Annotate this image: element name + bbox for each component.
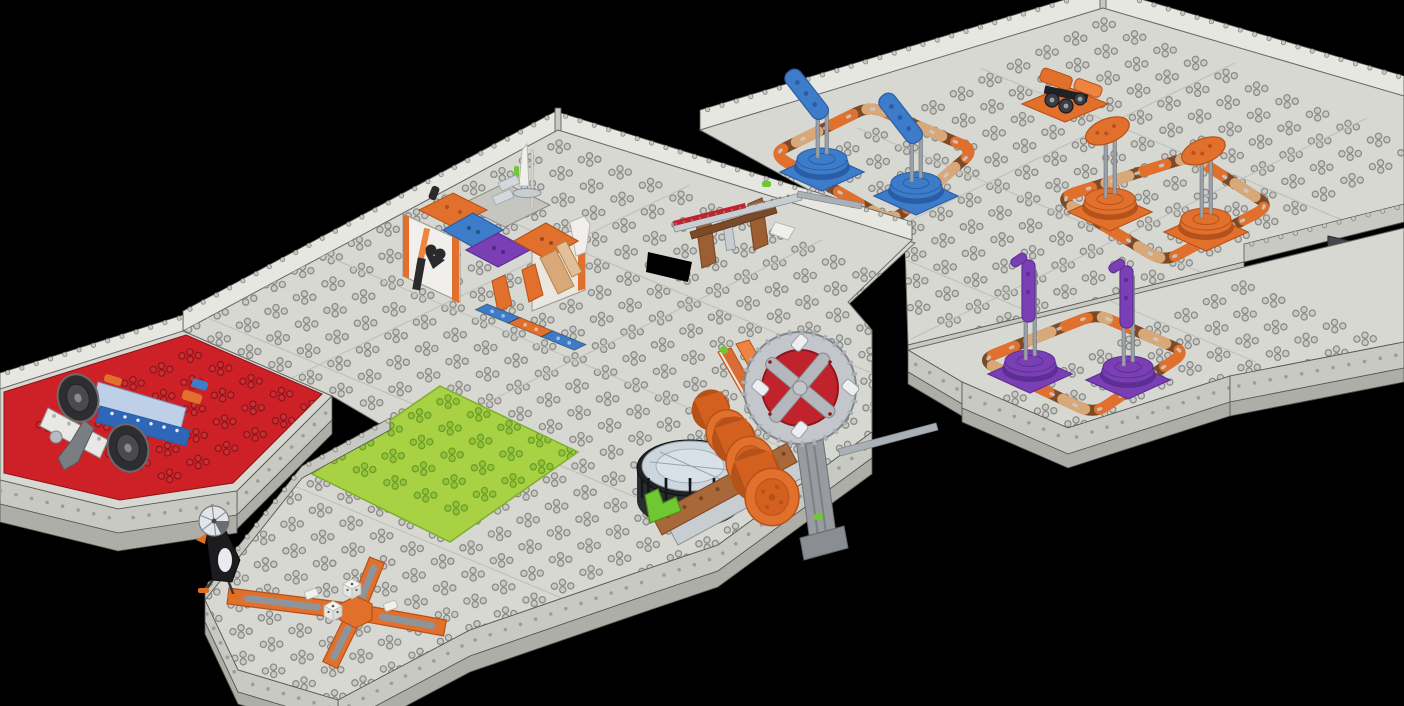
round-platform	[1085, 188, 1135, 210]
round-platform	[1181, 208, 1231, 230]
round-platform	[797, 148, 847, 170]
penguin-foot	[198, 588, 209, 593]
field-render	[0, 0, 1404, 706]
round-platform	[891, 172, 941, 194]
round-platform	[1103, 356, 1153, 378]
penguin-foot	[228, 594, 239, 599]
round-platform	[1005, 350, 1055, 372]
penguin-pinwheel-head	[199, 506, 229, 536]
field-svg	[0, 0, 1404, 706]
